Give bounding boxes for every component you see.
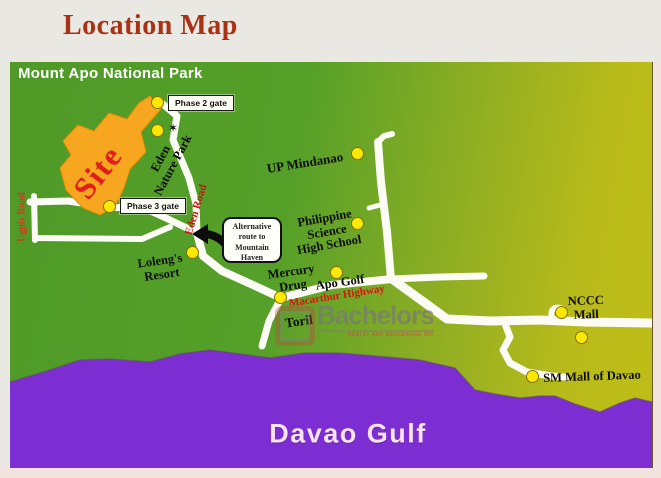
phase-2-gate-label: Phase 2 gate bbox=[168, 95, 234, 111]
slide: Location Map bbox=[0, 0, 661, 478]
park-name-label: Mount Apo National Park bbox=[18, 65, 203, 82]
water-shape bbox=[10, 350, 652, 468]
marker-sm-mall bbox=[526, 370, 539, 383]
phase-3-gate-label: Phase 3 gate bbox=[120, 198, 186, 214]
road-tick bbox=[369, 205, 380, 208]
marker-phase-2-gate bbox=[151, 96, 164, 109]
watermark: Bachelors REALTY AND BROKERAGE INC bbox=[275, 302, 434, 346]
road-sm-branch bbox=[503, 321, 566, 377]
watermark-name: Bachelors bbox=[317, 302, 434, 328]
map-graphics bbox=[10, 62, 652, 468]
davao-gulf-label: Davao Gulf bbox=[269, 419, 427, 448]
frame-strip-right bbox=[653, 62, 661, 468]
watermark-tagline: REALTY AND BROKERAGE INC bbox=[317, 330, 434, 338]
location-map: ✶ Mount Apo National Park Phase 2 gate P… bbox=[10, 62, 654, 470]
watermark-logo-mark bbox=[275, 306, 315, 346]
road-up-hook bbox=[378, 134, 392, 142]
marker-unlabeled bbox=[575, 331, 588, 344]
alternative-route-callout: Alternative route to Mountain Haven bbox=[222, 217, 282, 263]
marker-lolengs-resort bbox=[186, 246, 199, 259]
road-east-stub bbox=[391, 276, 484, 279]
frame-strip-bottom bbox=[0, 468, 661, 478]
marker-phase-3-gate bbox=[103, 200, 116, 213]
nccc-mall-label: NCCC Mall bbox=[567, 294, 604, 322]
road-up-mindanao bbox=[378, 142, 391, 279]
marker-eden-nature-park bbox=[151, 124, 164, 137]
road-lower-loop bbox=[35, 227, 170, 239]
ugpis-road-label: Ugpis Road bbox=[18, 192, 29, 242]
page-title: Location Map bbox=[63, 10, 238, 42]
marker-up-mindanao bbox=[351, 147, 364, 160]
marker-nccc-mall bbox=[555, 306, 568, 319]
road-ugpis bbox=[34, 196, 35, 240]
